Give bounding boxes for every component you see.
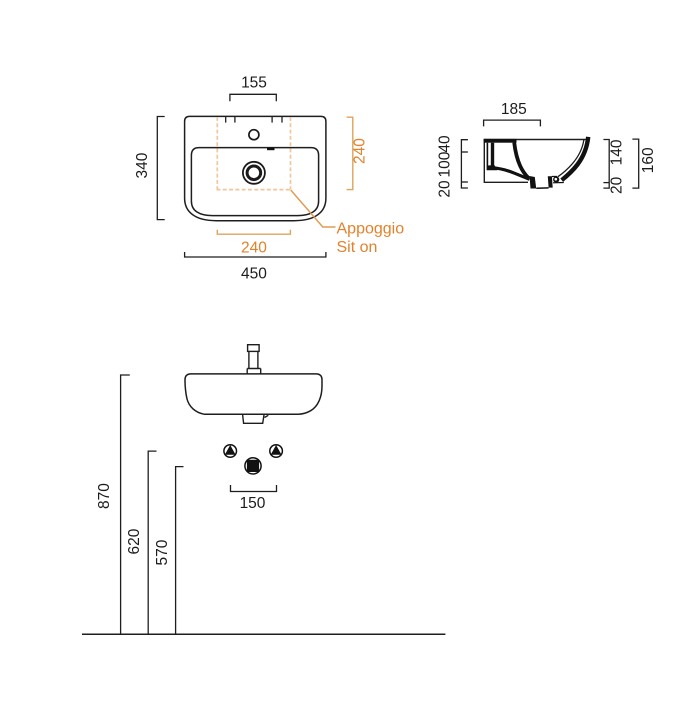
- svg-text:185: 185: [501, 101, 527, 118]
- svg-text:160: 160: [640, 147, 657, 173]
- svg-text:340: 340: [134, 152, 151, 178]
- svg-text:100: 100: [437, 151, 454, 177]
- svg-text:Sit on: Sit on: [337, 239, 378, 256]
- svg-text:870: 870: [96, 483, 113, 509]
- svg-text:20: 20: [437, 180, 454, 198]
- svg-text:620: 620: [126, 528, 143, 554]
- svg-text:240: 240: [241, 239, 267, 256]
- svg-text:140: 140: [608, 139, 625, 165]
- svg-text:570: 570: [154, 539, 171, 565]
- svg-text:Appoggio: Appoggio: [337, 221, 405, 238]
- svg-text:240: 240: [352, 138, 369, 164]
- svg-text:40: 40: [437, 135, 454, 153]
- svg-text:450: 450: [241, 266, 267, 283]
- svg-text:155: 155: [241, 75, 267, 92]
- svg-text:20: 20: [608, 176, 625, 194]
- svg-text:150: 150: [240, 495, 266, 512]
